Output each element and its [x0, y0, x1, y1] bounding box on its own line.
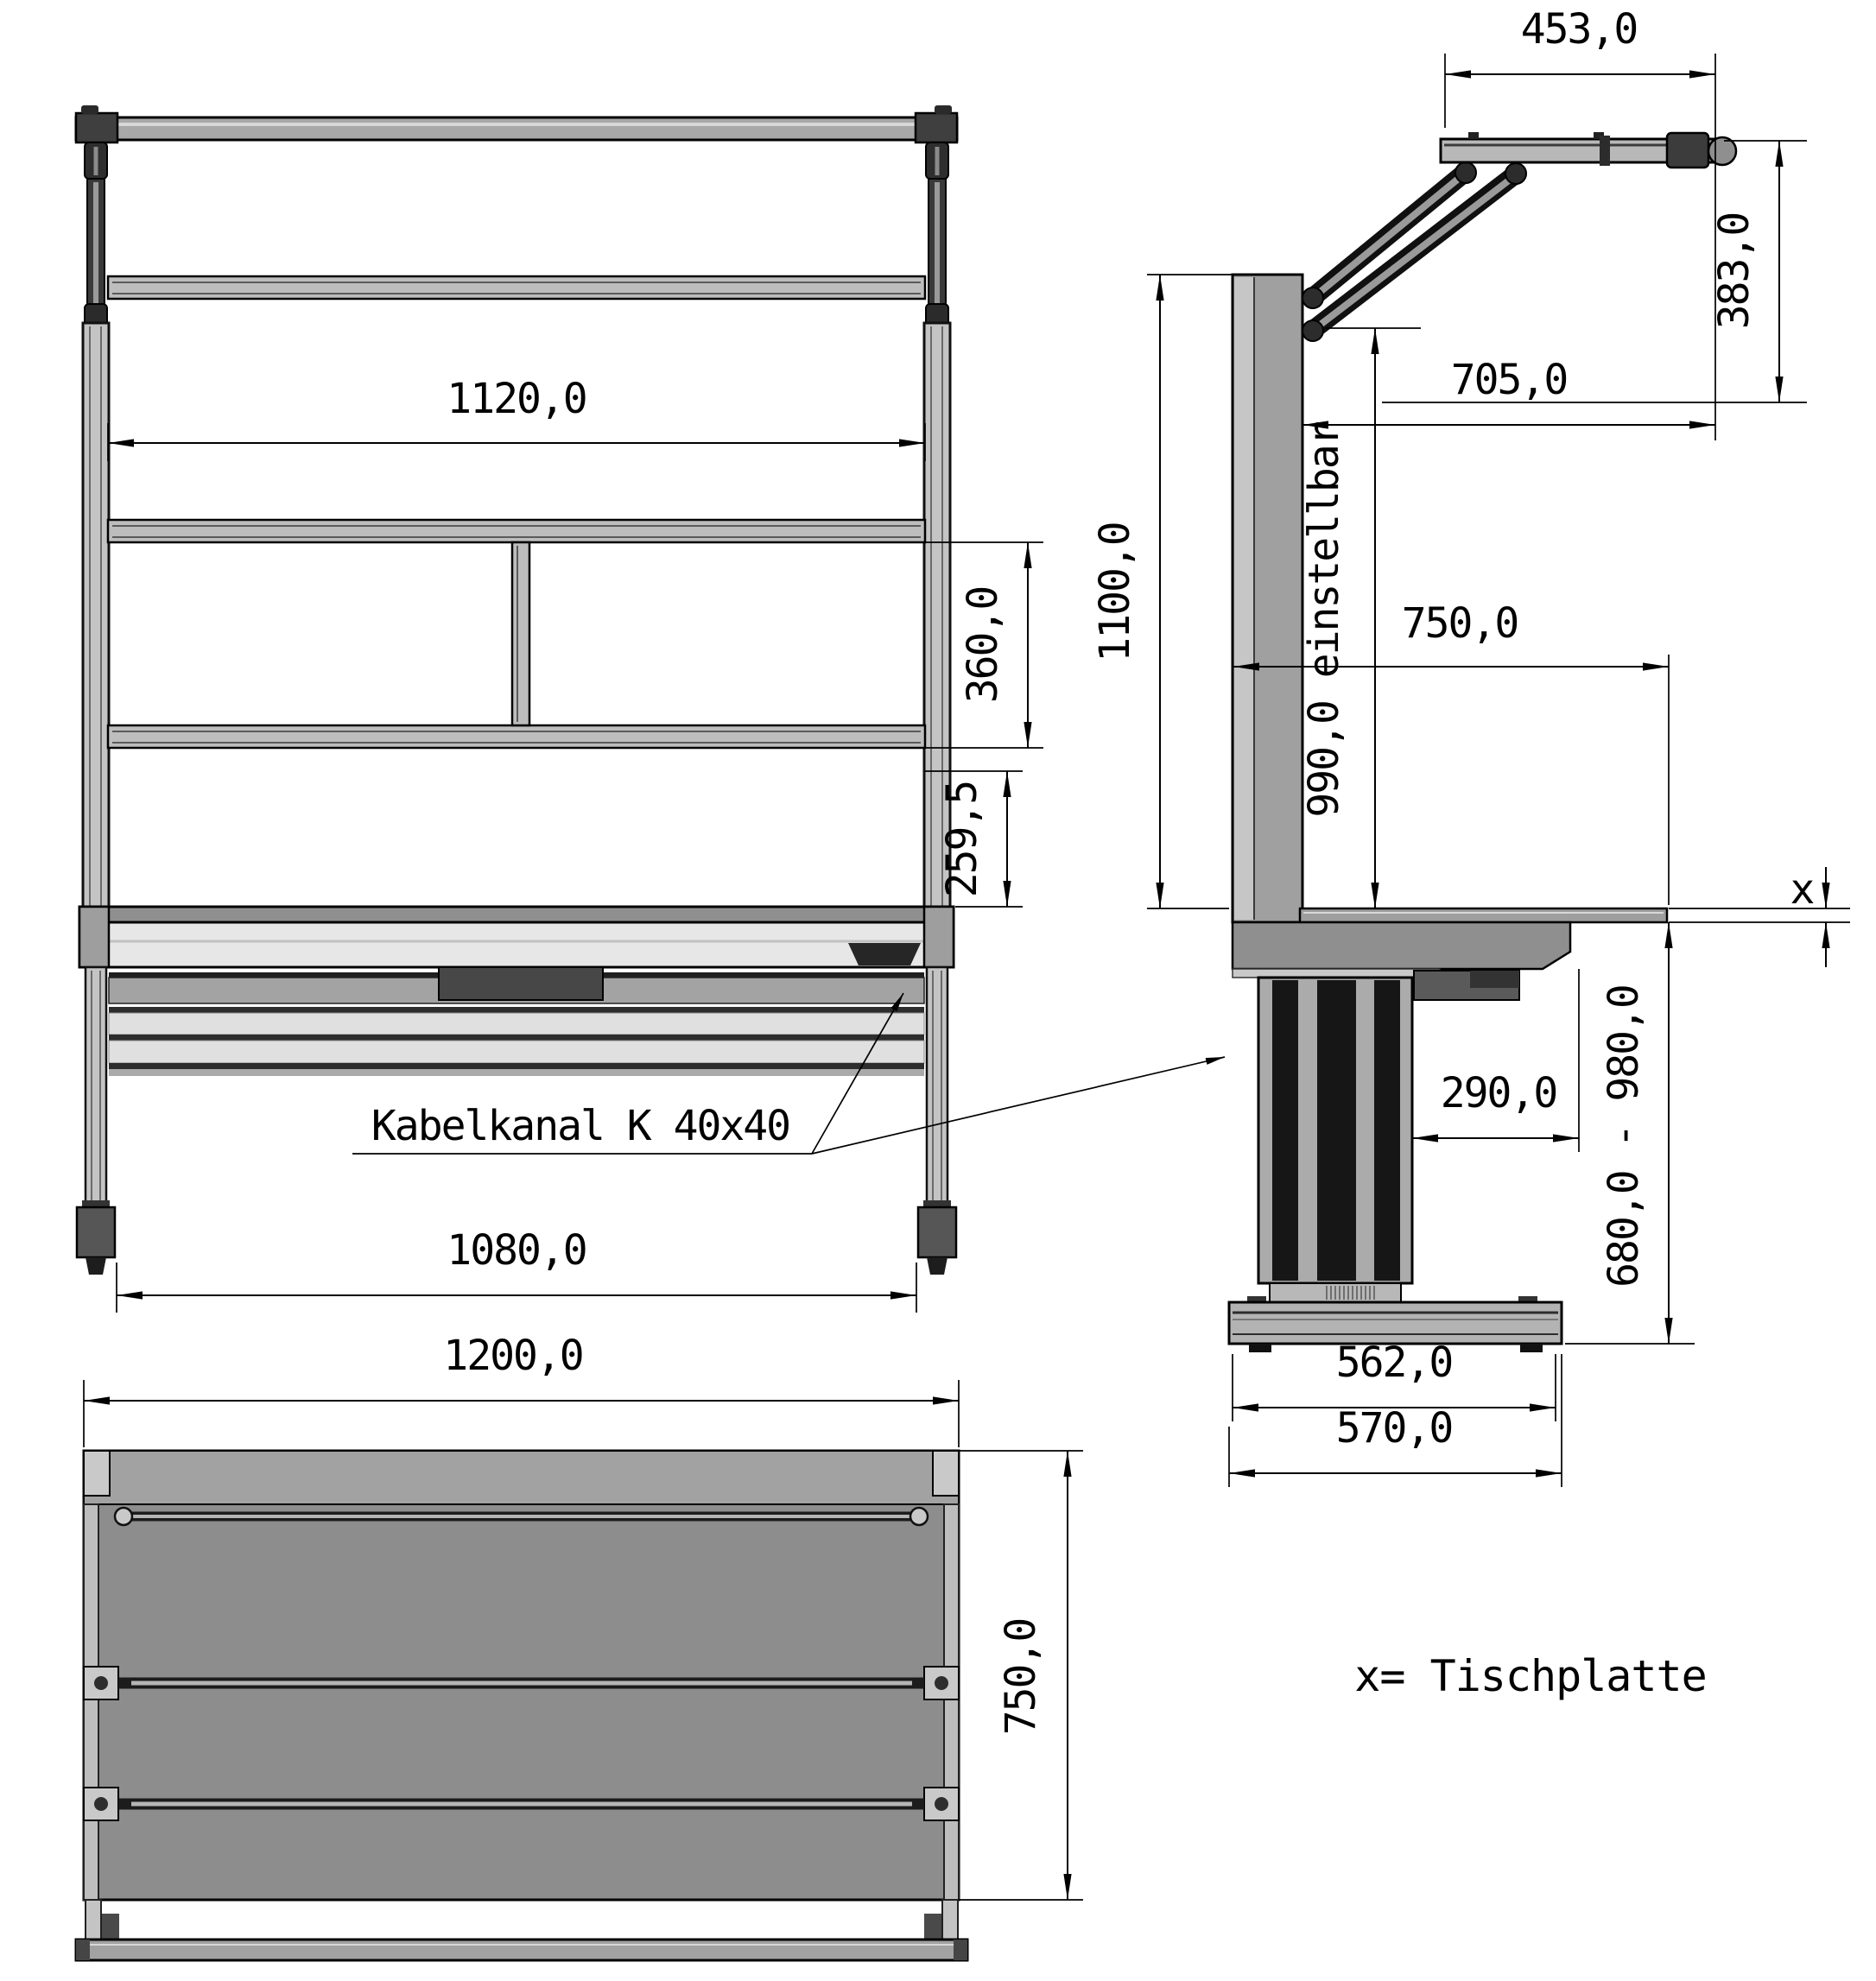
leveler-right	[927, 1257, 948, 1275]
arm-strut-lower	[1302, 163, 1526, 341]
side-rail-right	[944, 1504, 959, 1900]
column-stripe	[1317, 980, 1356, 1281]
post-stub-left	[86, 1900, 101, 1940]
channel-center-box	[439, 967, 603, 1000]
rail-cap-right	[954, 1940, 967, 1960]
dim-label-feet-span: 1080,0	[447, 1226, 586, 1275]
tabletop-slab	[1300, 908, 1667, 922]
arm-handle	[1667, 133, 1708, 168]
base-pad	[1249, 1344, 1271, 1352]
rod-end-ring	[115, 1508, 132, 1525]
strut-joint	[1505, 163, 1526, 184]
top-view	[76, 1451, 967, 1960]
leveler-left	[86, 1257, 106, 1275]
shelf-rail-middle	[108, 520, 925, 542]
light-rail-beam	[76, 117, 957, 140]
dim-front-inner-width: 1120,0	[108, 375, 925, 461]
dim-label-height-range: 680,0 - 980,0	[1600, 985, 1648, 1288]
strut-joint	[1455, 162, 1476, 183]
dim-side-arm-reach: 705,0	[1302, 356, 1715, 425]
dim-label-arm-length: 453,0	[1521, 5, 1638, 54]
corner-block-left	[84, 1451, 110, 1496]
leg-right	[927, 967, 948, 1206]
strut-joint	[1302, 320, 1323, 341]
dim-label-base-overall: 570,0	[1336, 1404, 1453, 1453]
stub-connector-left	[102, 1914, 119, 1940]
tabletop-side-block-right	[924, 907, 954, 967]
post-left	[83, 323, 109, 910]
light-rail-cap-left	[76, 113, 117, 142]
dim-label-total-width: 1200,0	[443, 1332, 582, 1380]
dim-label-arm-reach: 705,0	[1451, 356, 1568, 404]
dim-top-depth: 750,0	[959, 1451, 1083, 1900]
tabletop-side-block-left	[79, 907, 109, 967]
shelf-rail-lower	[108, 725, 925, 748]
dim-label-base-length: 562,0	[1336, 1339, 1453, 1387]
table-bracket	[1233, 922, 1570, 969]
light-rail-top-view	[76, 1940, 967, 1960]
rod-pivot	[94, 1797, 108, 1811]
dim-side-height-range: 680,0 - 980,0	[1565, 922, 1695, 1344]
front-view	[76, 105, 957, 1275]
dim-label-shelf-spacing: 360,0	[959, 587, 1007, 704]
corner-block-right	[933, 1451, 959, 1496]
rod-pivot	[94, 1676, 108, 1690]
base-pad	[1520, 1344, 1543, 1352]
dim-label-inner-width: 1120,0	[447, 375, 586, 423]
tabletop-front-face	[79, 922, 954, 967]
dim-side-frame-height: 1100,0	[1091, 275, 1233, 908]
rod-pivot	[935, 1676, 948, 1690]
back-band	[84, 1451, 959, 1504]
light-rail-nub-right	[935, 105, 952, 114]
post-stub-right	[942, 1900, 958, 1940]
arm-tick	[1468, 132, 1479, 139]
dim-front-total-width: 1200,0	[84, 1332, 959, 1447]
dim-label-table-depth: 750,0	[1402, 599, 1518, 648]
rod-pivot	[935, 1797, 948, 1811]
dim-front-feet-span: 1080,0	[117, 1226, 916, 1313]
dim-label-frame-height: 1100,0	[1091, 522, 1139, 661]
rail-cap-left	[76, 1940, 90, 1960]
dim-label-adjustable: 990,0 einstellbar	[1300, 421, 1348, 817]
center-divider	[512, 542, 529, 725]
control-box-step	[1470, 971, 1519, 988]
dim-front-lower-gap: 259,5	[925, 771, 1023, 907]
rod-end-ring	[910, 1508, 928, 1525]
leg-left	[86, 967, 106, 1206]
base-foot-beam	[1229, 1302, 1562, 1344]
dim-side-tabletop-thickness: x	[1669, 865, 1850, 967]
dim-label-top-depth: 750,0	[997, 1619, 1045, 1736]
side-rail-left	[84, 1504, 98, 1900]
cable-channel-stack	[109, 967, 924, 1076]
tabletop-back-rail	[79, 907, 954, 922]
dim-label-arm-height: 383,0	[1710, 213, 1759, 330]
column-stripe	[1374, 980, 1400, 1281]
strut-joint	[1302, 288, 1323, 308]
light-rail-nub-left	[81, 105, 98, 114]
workbench-technical-drawing: 1120,0 360,0 259,5 1080,0 1200,0 Kabelka…	[0, 0, 1876, 1981]
foot-right	[918, 1207, 956, 1257]
back-panel-strip	[1234, 277, 1254, 920]
shelf-rail-top	[108, 276, 925, 299]
cable-duct-label: Kabelkanal K 40x40	[371, 1102, 789, 1150]
arm-mid-joint	[1600, 136, 1610, 166]
dim-label-tabletop-marker: x	[1790, 865, 1815, 914]
dim-label-column-offset: 290,0	[1441, 1069, 1557, 1117]
column-stripe	[1272, 980, 1298, 1281]
foot-left	[77, 1207, 115, 1257]
cad-drawing-page: 1120,0 360,0 259,5 1080,0 1200,0 Kabelka…	[0, 0, 1876, 1981]
stub-connector-right	[924, 1914, 941, 1940]
light-rail-cap-right	[916, 113, 957, 142]
power-connector	[848, 943, 921, 965]
dim-label-lower-gap: 259,5	[938, 782, 986, 898]
tabletop-legend-note: x= Tischplatte	[1354, 1651, 1706, 1701]
